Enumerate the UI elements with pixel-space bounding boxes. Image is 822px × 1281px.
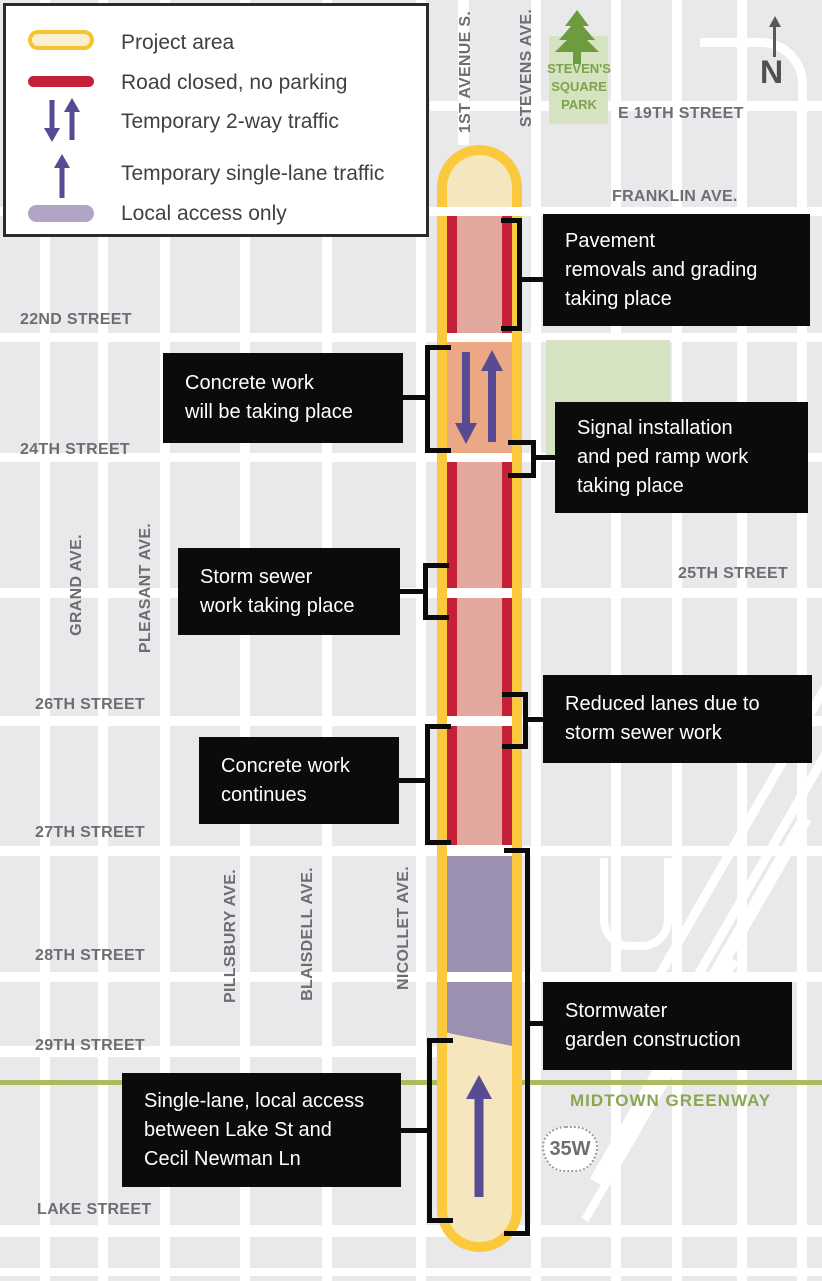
legend-label: Project area: [121, 31, 234, 55]
street-label-26th: 26TH STREET: [35, 696, 145, 714]
street-label-28th: 28TH STREET: [35, 947, 145, 965]
project-area-corridor: [437, 216, 522, 1252]
street-label-grand: GRAND AVE.: [68, 530, 86, 640]
street-label-25th: 25TH STREET: [678, 565, 788, 583]
street-label-e19th: E 19TH STREET: [618, 105, 744, 123]
road-closed-segment: [447, 216, 512, 333]
cross-street-gap: [447, 588, 512, 598]
street-line: [737, 0, 747, 1281]
street-label-24th: 24TH STREET: [20, 441, 130, 459]
street-label-nicollet: NICOLLET AVE.: [395, 863, 413, 993]
legend-swatch-road-closed: [28, 76, 94, 87]
construction-detour-map: STEVEN'S SQUARE PARK N 35W E 19TH STREET…: [0, 0, 822, 1281]
callout-single-lane: Single-lane, local access between Lake S…: [122, 1073, 401, 1187]
park-label-line: STEVEN'S: [544, 60, 614, 78]
road-closed-segment: [447, 462, 512, 588]
highway-shield-35w: 35W: [542, 1126, 598, 1172]
street-label-29th: 29TH STREET: [35, 1037, 145, 1055]
freeway-loop-ramp: [600, 858, 672, 950]
street-label-22nd: 22ND STREET: [20, 311, 132, 329]
street-label-franklin: FRANKLIN AVE.: [612, 188, 738, 206]
park-label-line: SQUARE: [544, 78, 614, 96]
legend-label: Road closed, no parking: [121, 71, 347, 95]
road-closed-segment: [447, 598, 512, 716]
street-line-stevens: [531, 0, 541, 1281]
north-label: N: [760, 54, 783, 91]
road-curve: [700, 38, 807, 158]
street-label-27th: 27TH STREET: [35, 824, 145, 842]
callout-concrete-continues: Concrete work continues: [199, 737, 399, 824]
legend-label: Temporary 2-way traffic: [121, 110, 339, 134]
street-label-pleasant: PLEASANT AVE.: [137, 518, 155, 658]
callout-signal: Signal installation and ped ramp work ta…: [555, 402, 808, 513]
street-label-1st-ave: 1ST AVENUE S.: [457, 7, 475, 137]
legend-swatch-local-access: [28, 205, 94, 222]
cross-street-gap: [447, 716, 512, 726]
legend-two-way-arrow-up: [64, 98, 80, 140]
street-line: [0, 1268, 822, 1276]
park-label: STEVEN'S SQUARE PARK: [544, 60, 614, 114]
legend-single-lane-arrow: [54, 154, 70, 198]
southbound-traffic-arrow: [455, 352, 477, 444]
cross-street-gap: [447, 453, 512, 462]
legend-swatch-project-area: [28, 30, 94, 50]
callout-reduced-lanes: Reduced lanes due to storm sewer work: [543, 675, 812, 763]
greenway-label: MIDTOWN GREENWAY: [570, 1091, 771, 1111]
legend: Project area Road closed, no parking Tem…: [3, 3, 429, 237]
cross-street-gap: [447, 972, 512, 982]
legend-two-way-arrow-down: [44, 100, 60, 142]
legend-label: Local access only: [121, 202, 287, 226]
street-label-lake: LAKE STREET: [37, 1201, 151, 1219]
legend-label: Temporary single-lane traffic: [121, 162, 384, 186]
street-label-blaisdell: BLAISDELL AVE.: [299, 864, 317, 1004]
project-area-north-cap: [437, 145, 522, 207]
street-label-pillsbury: PILLSBURY AVE.: [222, 866, 240, 1006]
street-line-22nd: [0, 333, 822, 342]
street-label-stevens: STEVENS AVE.: [518, 8, 536, 128]
tree-icon: [555, 10, 599, 64]
callout-pavement: Pavement removals and grading taking pla…: [543, 214, 810, 326]
street-line-27th: [0, 846, 822, 856]
cross-street-gap: [447, 333, 512, 342]
single-lane-traffic-arrow: [466, 1075, 492, 1197]
callout-stormwater-garden: Stormwater garden construction: [543, 982, 792, 1070]
northbound-traffic-arrow: [481, 350, 503, 442]
callout-storm-sewer: Storm sewer work taking place: [178, 548, 400, 635]
cross-street-gap: [447, 845, 512, 856]
park-label-line: PARK: [544, 96, 614, 114]
street-line-lake: [0, 1225, 822, 1237]
local-access-segment: [447, 856, 512, 1046]
callout-concrete-work: Concrete work will be taking place: [163, 353, 403, 443]
north-arrow-shaft: [773, 25, 776, 57]
